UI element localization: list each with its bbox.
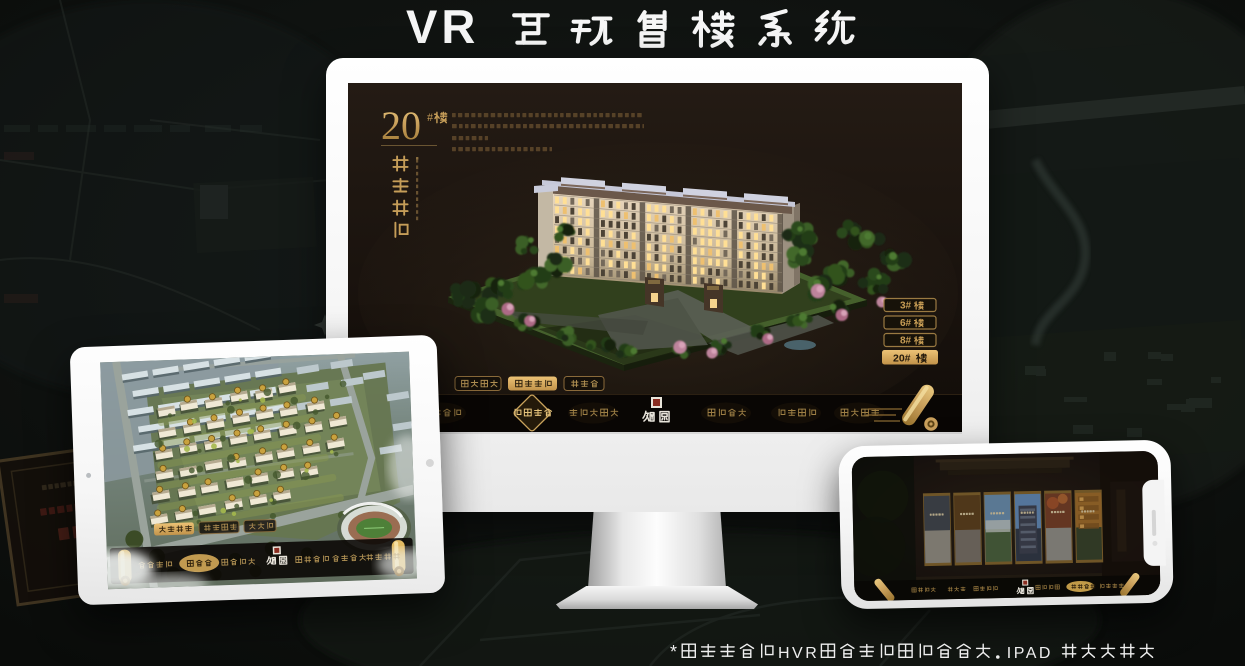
svg-text:#: # <box>427 110 433 124</box>
svg-text:20: 20 <box>381 103 421 148</box>
svg-text:8#: 8# <box>900 336 912 347</box>
svg-text:IPAD: IPAD <box>1007 645 1053 662</box>
svg-text:20#: 20# <box>893 353 911 365</box>
svg-text:6#: 6# <box>900 318 912 329</box>
svg-text:3#: 3# <box>900 301 912 312</box>
svg-text:HVR: HVR <box>778 645 819 662</box>
svg-text:*: * <box>670 642 677 662</box>
svg-text:VR: VR <box>406 4 479 53</box>
